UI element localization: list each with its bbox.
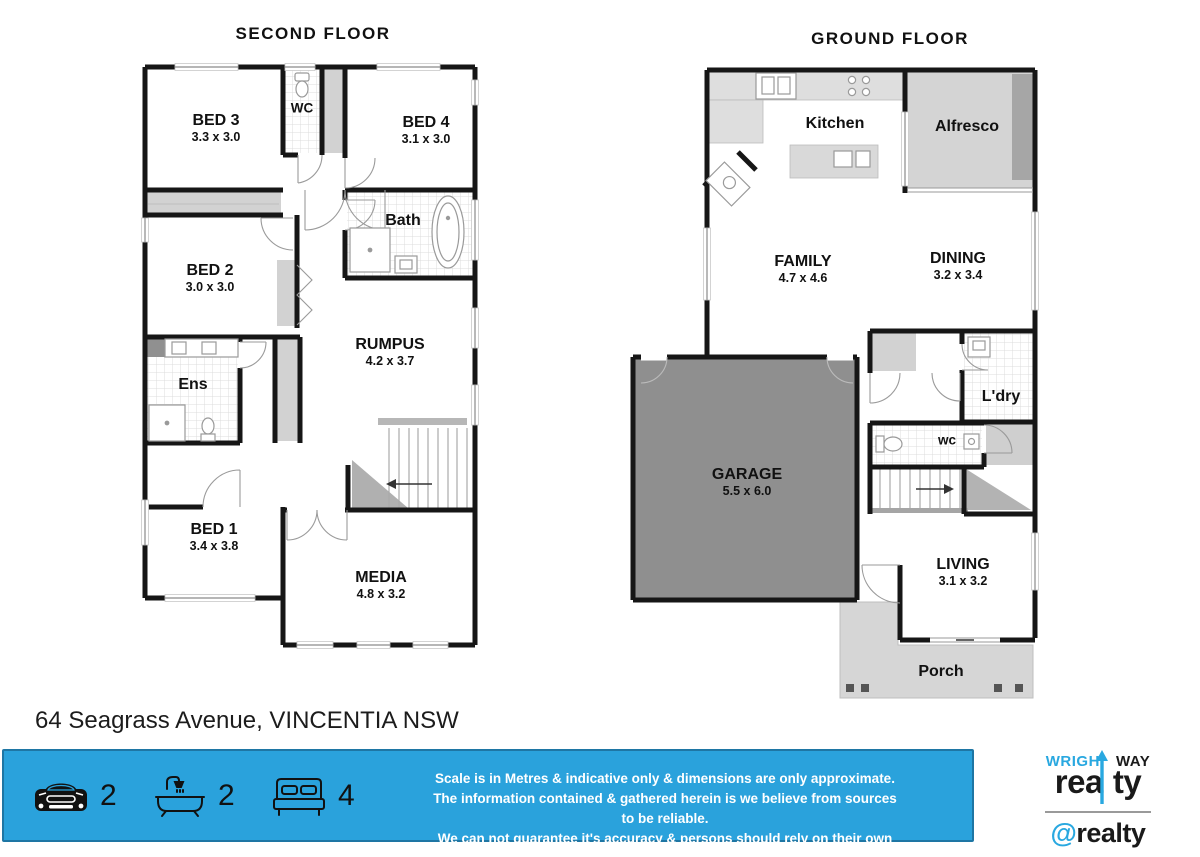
bedrooms-stat: 4	[270, 775, 355, 817]
room-label-alfresco: Alfresco	[935, 118, 999, 136]
brand-divider	[1045, 811, 1151, 813]
porch-floor	[840, 602, 1033, 698]
floorplan-flyer: SECOND FLOOR GROUND FLOOR	[0, 0, 1200, 857]
room-label-bed3: BED 3 3.3 x 3.0	[192, 112, 241, 144]
bed-icon	[270, 775, 328, 817]
room-label-bed1: BED 1 3.4 x 3.8	[190, 521, 239, 553]
ground-floor-plan	[628, 62, 1068, 702]
room-label-family: FAMILY 4.7 x 4.6	[774, 253, 831, 285]
toilet-icon	[295, 73, 309, 81]
disclaimer-text: Scale is in Metres & indicative only & d…	[432, 769, 898, 857]
room-label-wc-upper: WC	[291, 100, 314, 115]
porch-post	[994, 684, 1002, 692]
up-arrow-icon	[1096, 750, 1108, 806]
room-label-rumpus: RUMPUS 4.2 x 3.7	[355, 336, 424, 368]
ground-floor-title: GROUND FLOOR	[811, 29, 969, 49]
car-spaces-stat: 2	[32, 775, 117, 817]
room-label-porch: Porch	[918, 663, 963, 681]
room-label-kitchen: Kitchen	[806, 115, 865, 133]
second-floor-plan	[140, 60, 480, 650]
bath-icon	[152, 773, 208, 819]
footer-bar: 2 2	[2, 749, 974, 842]
second-floor-title: SECOND FLOOR	[236, 24, 391, 44]
room-label-media: MEDIA 4.8 x 3.2	[355, 569, 407, 601]
atrealty-logo: @realty	[1028, 818, 1168, 849]
stairs-up-icon	[352, 418, 467, 508]
property-address: 64 Seagrass Avenue, VINCENTIA NSW	[35, 707, 459, 735]
bathrooms-stat: 2	[152, 773, 235, 819]
room-label-living: LIVING 3.1 x 3.2	[936, 556, 989, 588]
basin-icon	[964, 434, 979, 449]
room-label-dining: DINING 3.2 x 3.4	[930, 250, 986, 282]
corner-basin	[706, 162, 750, 206]
room-label-bed2: BED 2 3.0 x 3.0	[186, 262, 235, 294]
stove-icon	[848, 76, 855, 83]
toilet-icon	[876, 436, 884, 452]
room-label-bath: Bath	[385, 212, 421, 230]
room-label-ldry: L'dry	[982, 388, 1020, 406]
room-label-bed4: BED 4 3.1 x 3.0	[402, 114, 451, 146]
wrightway-logo: WRIGH WAY rea ty	[1028, 748, 1168, 806]
room-label-garage: GARAGE 5.5 x 6.0	[712, 466, 782, 498]
toilet-icon	[202, 418, 214, 434]
porch-post	[846, 684, 854, 692]
room-label-ens: Ens	[178, 376, 207, 394]
island-sink	[834, 151, 852, 167]
stairs-down-icon	[872, 469, 1031, 513]
porch-post	[861, 684, 869, 692]
room-label-wc-lower: wc	[938, 432, 956, 447]
porch-post	[1015, 684, 1023, 692]
car-icon	[32, 775, 90, 817]
agency-branding: WRIGH WAY rea ty @realty	[1028, 748, 1168, 849]
